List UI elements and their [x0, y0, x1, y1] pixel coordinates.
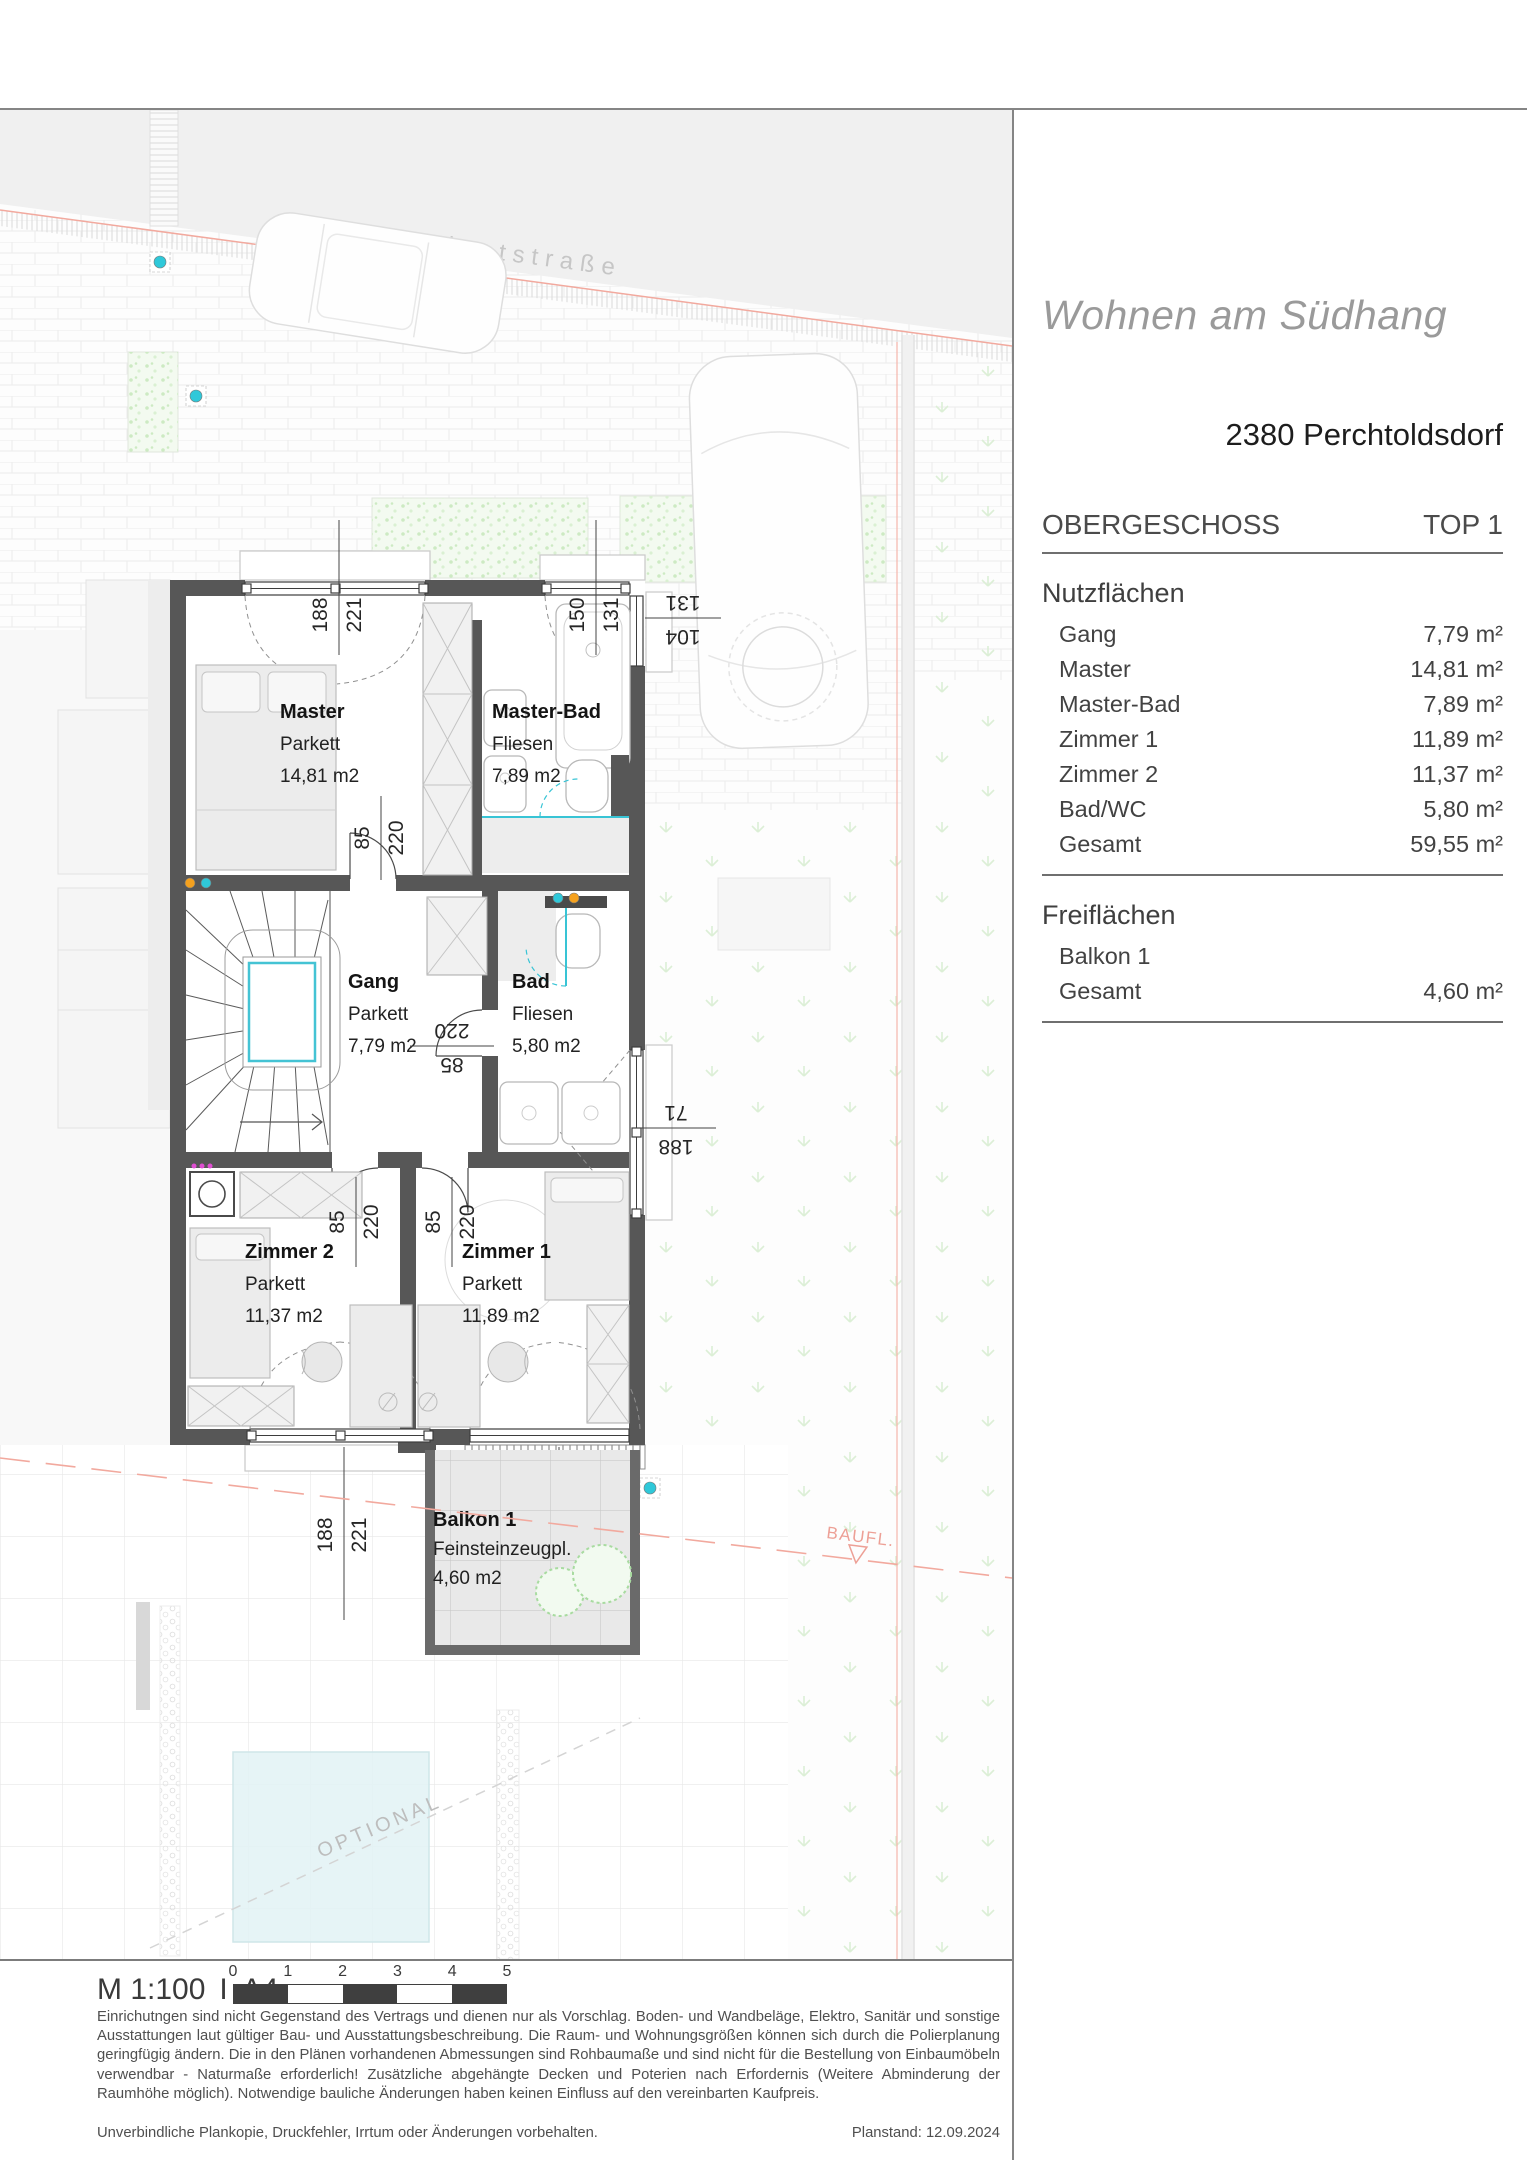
row-label: Gesamt: [1042, 827, 1141, 862]
row-value: 4,60 m²: [1423, 974, 1503, 1009]
room-label-balkon: Balkon 1: [433, 1509, 516, 1531]
sill-bad-window: [646, 1045, 672, 1220]
dim-z2-door-w: 85: [326, 1210, 349, 1233]
scalebar-tick: 2: [338, 1963, 347, 1981]
gravel-strip-left: [160, 1606, 180, 1956]
balcony: Balkon 1 Feinsteinzeugpl. 4,60 m2: [425, 1450, 640, 1655]
room-floor-master: Parkett: [280, 734, 341, 755]
room-floor-zimmer1: Parkett: [462, 1274, 523, 1295]
row-value: 14,81 m²: [1410, 652, 1503, 687]
note-row: Unverbindliche Plankopie, Druckfehler, I…: [97, 2125, 1000, 2141]
room-area-zimmer2: 11,37 m2: [245, 1306, 323, 1327]
dim-z2-window-w: 188: [314, 1517, 337, 1552]
dim-master-door-h: 220: [385, 820, 408, 855]
room-label-master-bad: Master-Bad: [492, 701, 601, 723]
floor-label: OBERGESCHOSS: [1042, 509, 1280, 541]
dim-mbad-window-h: 131: [600, 597, 623, 632]
freiflaechen-rule: [1042, 1021, 1503, 1023]
room-label-master: Master: [280, 701, 345, 723]
sill-mbad-window: [540, 555, 645, 580]
scale-separator: I: [219, 1973, 227, 2007]
scalebar: [233, 1984, 507, 2004]
plan-footer: M 1:100 I A4 0 1 2 3 4 5 Einrichutngen s…: [0, 1961, 1012, 2160]
room-area-zimmer1: 11,89 m2: [462, 1306, 540, 1327]
dim-bad-door-w: 85: [440, 1053, 463, 1076]
header-rule: [1042, 552, 1503, 554]
row-label: Balkon 1: [1042, 939, 1150, 974]
row-label: Gang: [1042, 617, 1117, 652]
table-row: Balkon 1: [1042, 939, 1503, 974]
floor-plan-drawing: Privatstraße: [0, 110, 1012, 1959]
scale-label: M 1:100: [97, 1973, 205, 2007]
nutzflaechen-rule: [1042, 874, 1503, 876]
freiflaechen-title: Freiflächen: [1042, 900, 1503, 931]
table-row-total: Gesamt4,60 m²: [1042, 974, 1503, 1009]
row-label: Gesamt: [1042, 974, 1141, 1009]
row-value: 7,79 m²: [1423, 617, 1503, 652]
dim-master-window-h: 221: [343, 597, 366, 632]
dim-mbad-side-h: 131: [665, 591, 700, 614]
dim-master-window-w: 188: [309, 597, 332, 632]
nutzflaechen-table: Gang7,79 m² Master14,81 m² Master-Bad7,8…: [1042, 617, 1503, 862]
table-row: Zimmer 111,89 m²: [1042, 722, 1503, 757]
row-value: 5,80 m²: [1423, 792, 1503, 827]
dim-z2-window-h: 221: [348, 1517, 371, 1552]
dim-bad-window-h: 71: [664, 1101, 687, 1124]
row-value: 59,55 m²: [1410, 827, 1503, 862]
info-panel: Wohnen am Südhang 2380 Perchtoldsdorf OB…: [1014, 110, 1527, 2160]
dim-z1-door-w: 85: [422, 1210, 445, 1233]
dim-mbad-window-w: 150: [566, 597, 589, 632]
car-side: [688, 352, 870, 750]
row-value: 7,89 m²: [1423, 687, 1503, 722]
garden-shed-outline: [718, 878, 830, 950]
project-title: Wohnen am Südhang: [1042, 292, 1503, 339]
room-label-gang: Gang: [348, 971, 399, 993]
row-value: 11,89 m²: [1412, 722, 1503, 757]
room-area-balkon: 4,60 m2: [433, 1568, 502, 1589]
dim-bad-window-w: 188: [658, 1135, 693, 1158]
room-floor-gang: Parkett: [348, 1004, 409, 1025]
nutzflaechen-title: Nutzflächen: [1042, 578, 1503, 609]
room-floor-balkon: Feinsteinzeugpl.: [433, 1539, 571, 1560]
room-label-bad: Bad: [512, 971, 550, 993]
row-label: Zimmer 2: [1042, 757, 1158, 792]
table-row: Bad/WC5,80 m²: [1042, 792, 1503, 827]
room-label-zimmer2: Zimmer 2: [245, 1241, 334, 1263]
garden-grass-3: [914, 350, 1012, 1959]
scalebar-tick: 1: [283, 1963, 292, 1981]
table-row: Gang7,79 m²: [1042, 617, 1503, 652]
plan-date: Planstand: 12.09.2024: [852, 2125, 1000, 2141]
dim-z1-door-h: 220: [456, 1204, 479, 1239]
row-label: Master: [1042, 652, 1131, 687]
table-row-total: Gesamt59,55 m²: [1042, 827, 1503, 862]
scalebar-tick: 5: [503, 1963, 512, 1981]
row-value: 11,37 m²: [1412, 757, 1503, 792]
garden-grass-2: [788, 1445, 912, 1959]
sill-master-window: [240, 551, 430, 580]
room-area-master: 14,81 m2: [280, 766, 359, 787]
table-row: Master14,81 m²: [1042, 652, 1503, 687]
table-row: Master-Bad7,89 m²: [1042, 687, 1503, 722]
room-area-gang: 7,79 m2: [348, 1036, 417, 1057]
dim-master-door-w: 85: [351, 826, 374, 849]
room-label-zimmer1: Zimmer 1: [462, 1241, 551, 1263]
row-label: Bad/WC: [1042, 792, 1147, 827]
room-floor-zimmer2: Parkett: [245, 1274, 306, 1295]
gang-wardrobe: [427, 897, 487, 975]
dim-z2-door-h: 220: [360, 1204, 383, 1239]
scalebar-ticks: 0 1 2 3 4 5: [233, 1963, 507, 1981]
plan-header-row: OBERGESCHOSS TOP 1: [1042, 509, 1503, 541]
room-area-master-bad: 7,89 m2: [492, 766, 561, 787]
gravel-strip-right: [497, 1710, 519, 1959]
dim-mbad-side-w: 104: [665, 625, 700, 648]
room-area-bad: 5,80 m2: [512, 1036, 581, 1057]
floor-plan-pane: Privatstraße: [0, 110, 1012, 1959]
room-floor-master-bad: Fliesen: [492, 734, 553, 755]
dim-bad-door-h: 220: [434, 1019, 469, 1042]
project-address: 2380 Perchtoldsdorf: [1042, 417, 1503, 453]
freiflaechen-table: Balkon 1 Gesamt4,60 m²: [1042, 939, 1503, 1009]
row-label: Zimmer 1: [1042, 722, 1158, 757]
scalebar-tick: 0: [229, 1963, 238, 1981]
disclaimer-text: Einrichutngen sind nicht Gegenstand des …: [97, 2008, 1000, 2104]
plan-note: Unverbindliche Plankopie, Druckfehler, I…: [97, 2125, 598, 2141]
row-label: Master-Bad: [1042, 687, 1180, 722]
room-floor-bad: Fliesen: [512, 1004, 573, 1025]
scalebar-tick: 4: [448, 1963, 457, 1981]
scalebar-tick: 3: [393, 1963, 402, 1981]
unit-label: TOP 1: [1423, 509, 1503, 541]
master-wardrobe: [423, 603, 472, 875]
table-row: Zimmer 211,37 m²: [1042, 757, 1503, 792]
